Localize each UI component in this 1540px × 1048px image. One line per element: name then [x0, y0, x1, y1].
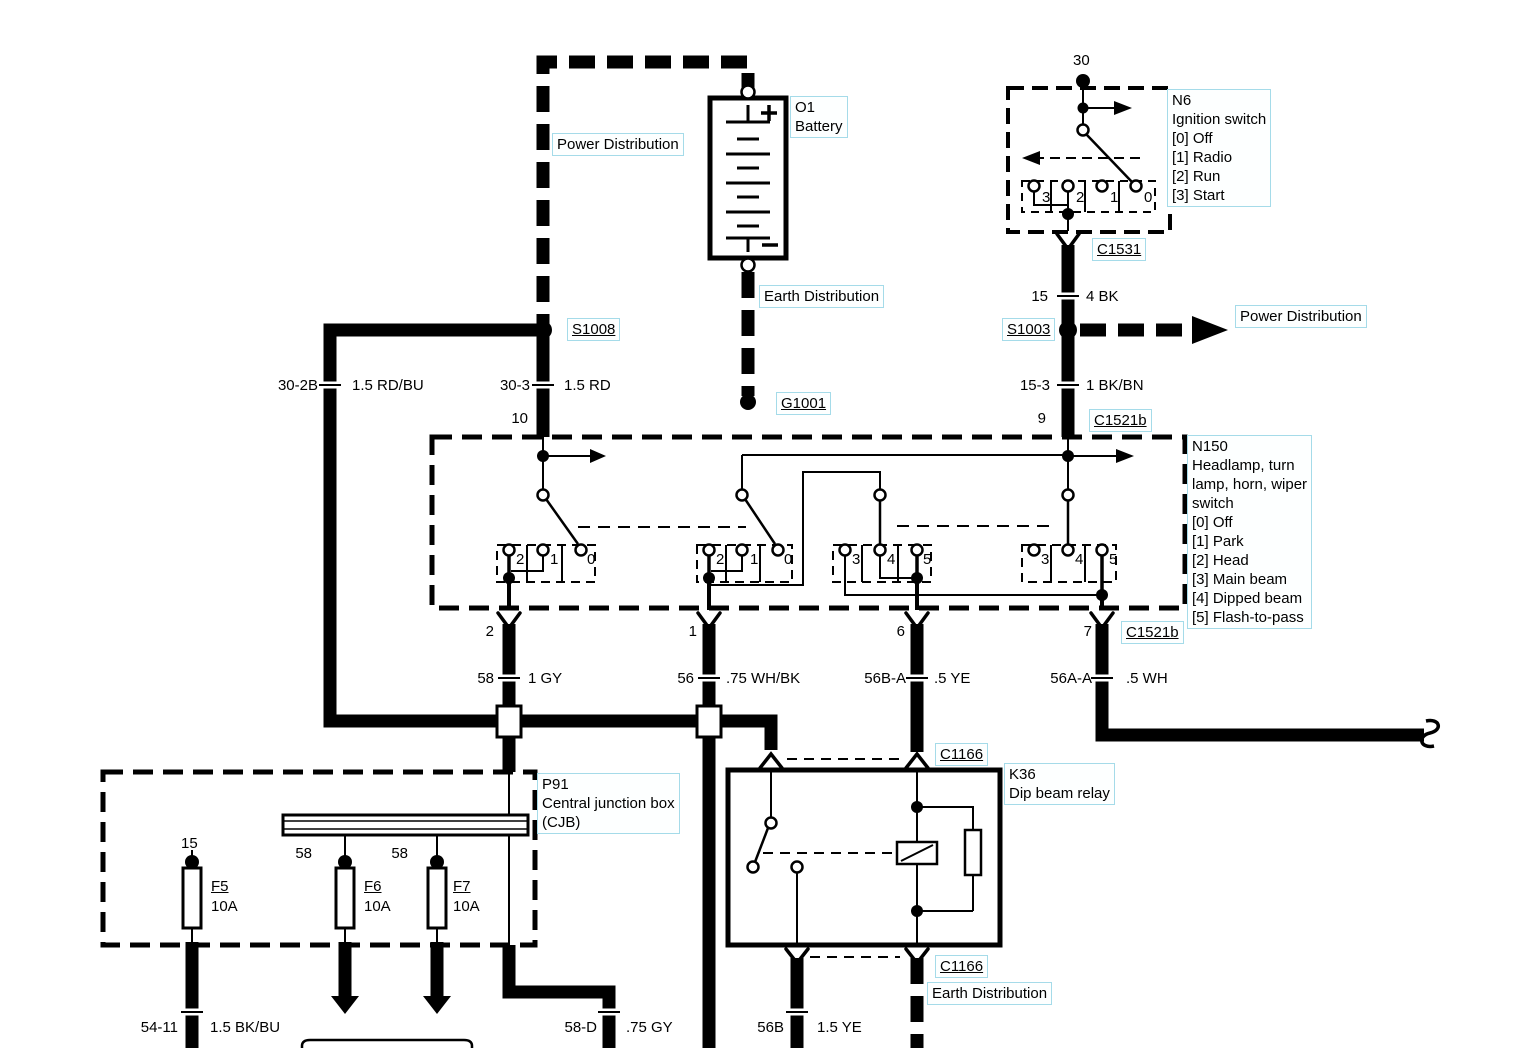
wire-power-feed-dashed — [543, 62, 748, 330]
connector-c1166-bottom-label: C1166 — [935, 955, 988, 978]
wire-56a-a-continuation-squiggle — [1422, 721, 1439, 747]
cjb-id: P91 — [542, 775, 675, 794]
wire-crossover-bridge — [497, 706, 521, 737]
relay-id: K36 — [1009, 765, 1110, 784]
n150-pin-6: 6 — [897, 623, 905, 641]
wire-30-3-spec: 1.5 RD — [564, 377, 611, 395]
power-distribution-right-label: Power Distribution — [1235, 305, 1367, 328]
connector-c1166-bottom-chevron — [906, 949, 928, 963]
n150-pos-1: [1] Park — [1192, 532, 1307, 551]
n150-id: N150 — [1192, 437, 1307, 456]
ignition-info-label: N6 Ignition switch [0] Off [1] Radio [2]… — [1167, 89, 1271, 207]
ground-g1001-label: G1001 — [776, 392, 831, 415]
fuse-f7-rating: 10A — [453, 898, 480, 916]
ignition-id: N6 — [1172, 91, 1266, 110]
connector-c1531-chevron — [1057, 234, 1079, 249]
ignition-blade — [1086, 134, 1132, 182]
wire-30-2b-spec: 1.5 RD/BU — [352, 377, 424, 395]
wire-56a-a-id: 56A-A — [1050, 670, 1092, 688]
connector-c1531-label: C1531 — [1092, 238, 1146, 261]
n150-gb-1: 1 — [750, 551, 758, 569]
n150-ga-0: 0 — [587, 551, 595, 569]
n150-gc-3: 3 — [852, 551, 860, 569]
n150-pin-7: 7 — [1084, 623, 1092, 641]
connector-c1166-bottom-chevron — [786, 949, 808, 963]
wiring-diagram: Power Distribution O1 Battery Earth Dist… — [0, 0, 1540, 1048]
ignition-name: Ignition switch — [1172, 110, 1266, 129]
ignition-contact-0: 0 — [1144, 189, 1152, 207]
ignition-contact-1: 1 — [1110, 189, 1118, 207]
bottom-component-edge — [302, 1040, 472, 1048]
relay-info-label: K36 Dip beam relay — [1004, 763, 1115, 805]
wire-56b-id: 56B — [757, 1019, 784, 1037]
n150-pos-0: [0] Off — [1192, 513, 1307, 532]
n150-pin-10: 10 — [511, 410, 528, 428]
fuse-f5-feed: 15 — [181, 835, 198, 853]
n150-ga-2: 2 — [516, 551, 524, 569]
battery-symbol — [726, 105, 778, 252]
power-distribution-arrowhead — [1192, 316, 1228, 344]
splice-s1003-label: S1003 — [1002, 318, 1055, 341]
n150-pos-2: [2] Head — [1192, 551, 1307, 570]
wire-58-spec: 1 GY — [528, 670, 562, 688]
n150-pin-1: 1 — [689, 623, 697, 641]
wire-15-spec: 4 BK — [1086, 288, 1119, 306]
cjb-bus-bar — [283, 815, 528, 835]
battery-id: O1 — [795, 98, 843, 117]
connector-c1521b-pin7-chevron — [1091, 613, 1113, 628]
wire-58-id: 58 — [477, 670, 494, 688]
earth-distribution-bottom-label: Earth Distribution — [927, 982, 1052, 1005]
wire-56a-a-spec: .5 WH — [1126, 670, 1168, 688]
cjb-desc-0: Central junction box — [542, 794, 675, 813]
wire-54-11-id: 54-11 — [141, 1019, 178, 1037]
n150-desc-1: lamp, horn, wiper — [1192, 475, 1307, 494]
n150-pin-9: 9 — [1038, 410, 1046, 428]
ignition-switch-internals — [1022, 81, 1155, 231]
cjb-box — [103, 772, 535, 945]
power-distribution-top-label: Power Distribution — [552, 133, 684, 156]
n150-desc-0: Headlamp, turn — [1192, 456, 1307, 475]
n150-gb-2: 2 — [716, 551, 724, 569]
n150-gd-3: 3 — [1041, 551, 1049, 569]
battery-label: O1 Battery — [790, 96, 848, 138]
connector-c1521b-pin1-chevron — [698, 613, 720, 628]
n150-blade-a — [546, 499, 578, 544]
fuse-f7-feed: 58 — [391, 845, 408, 863]
fuse-f6-output-arrow — [331, 942, 359, 1014]
wire-56b-spec: 1.5 YE — [817, 1019, 862, 1037]
ignition-pos-1: [1] Radio — [1172, 148, 1266, 167]
wire-30-3-id: 30-3 — [500, 377, 530, 395]
splice-s1008-label: S1008 — [567, 318, 620, 341]
n150-info-label: N150 Headlamp, turn lamp, horn, wiper sw… — [1187, 435, 1312, 629]
cjb-info-label: P91 Central junction box (CJB) — [537, 773, 680, 834]
connector-c1166-top-label: C1166 — [935, 743, 988, 766]
n150-pos-3: [3] Main beam — [1192, 570, 1307, 589]
wire-15-id: 15 — [1031, 288, 1048, 306]
fuse-f5-symbol — [183, 868, 201, 928]
fuse-f6-feed: 58 — [295, 845, 312, 863]
wire-58-d-spec: .75 GY — [626, 1019, 673, 1037]
connector-c1521b-bottom-label: C1521b — [1121, 621, 1184, 644]
ignition-contact-2: 2 — [1076, 189, 1084, 207]
wire-58-d-id: 58-D — [564, 1019, 597, 1037]
splice-s1008-dot — [534, 321, 552, 339]
wire-56b-a-spec: .5 YE — [934, 670, 970, 688]
n150-pos-5: [5] Flash-to-pass — [1192, 608, 1307, 627]
battery-name: Battery — [795, 117, 843, 136]
ignition-contact-3: 3 — [1042, 189, 1050, 207]
n150-gd-4: 4 — [1075, 551, 1083, 569]
relay-internals — [755, 770, 981, 945]
wire-56-id: 56 — [677, 670, 694, 688]
ignition-pos-3: [3] Start — [1172, 186, 1266, 205]
connector-c1166-top-chevron — [760, 754, 782, 768]
fuse-f6-symbol — [336, 868, 354, 928]
n150-pos-4: [4] Dipped beam — [1192, 589, 1307, 608]
ground-g1001-dot — [740, 394, 756, 410]
n150-gc-5: 5 — [923, 551, 931, 569]
wire-15-3-id: 15-3 — [1020, 377, 1050, 395]
connector-c1521b-pin6-chevron — [906, 613, 928, 628]
connector-c1166-top-chevron — [906, 754, 928, 768]
fuse-f7-symbol — [428, 868, 446, 928]
relay-switch-blade — [755, 828, 768, 862]
fuse-f6-rating: 10A — [364, 898, 391, 916]
earth-distribution-top-label: Earth Distribution — [759, 285, 884, 308]
n150-internals — [497, 437, 1134, 610]
relay-box — [728, 770, 1000, 945]
splice-s1003-dot — [1059, 321, 1077, 339]
ignition-pos-0: [0] Off — [1172, 129, 1266, 148]
fuse-f5-id: F5 — [211, 878, 229, 896]
connector-c1521b-pin2-chevron — [498, 613, 520, 628]
n150-blade-b — [745, 499, 775, 544]
relay-resistor — [965, 830, 981, 875]
n150-gb-0: 0 — [784, 551, 792, 569]
fuse-f5-rating: 10A — [211, 898, 238, 916]
cjb-desc-1: (CJB) — [542, 813, 675, 832]
cjb-internals — [183, 772, 528, 948]
wire-56b-a-id: 56B-A — [864, 670, 906, 688]
ignition-terminal-30: 30 — [1073, 52, 1090, 70]
n150-gc-4: 4 — [887, 551, 895, 569]
fuse-f7-id: F7 — [453, 878, 471, 896]
fuse-f7-output-arrow — [423, 942, 451, 1014]
wire-56-spec: .75 WH/BK — [726, 670, 800, 688]
wire-crossover-bridge — [697, 706, 721, 737]
wire-30-2b-id: 30-2B — [278, 377, 318, 395]
n150-ga-1: 1 — [550, 551, 558, 569]
fuse-f6-id: F6 — [364, 878, 382, 896]
wire-54-11-spec: 1.5 BK/BU — [210, 1019, 280, 1037]
n150-pin-2: 2 — [486, 623, 494, 641]
n150-desc-2: switch — [1192, 494, 1307, 513]
wire-15-3-spec: 1 BK/BN — [1086, 377, 1144, 395]
relay-name: Dip beam relay — [1009, 784, 1110, 803]
ignition-pos-2: [2] Run — [1172, 167, 1266, 186]
n150-gd-5: 5 — [1109, 551, 1117, 569]
connector-c1521b-top-label: C1521b — [1089, 409, 1152, 432]
